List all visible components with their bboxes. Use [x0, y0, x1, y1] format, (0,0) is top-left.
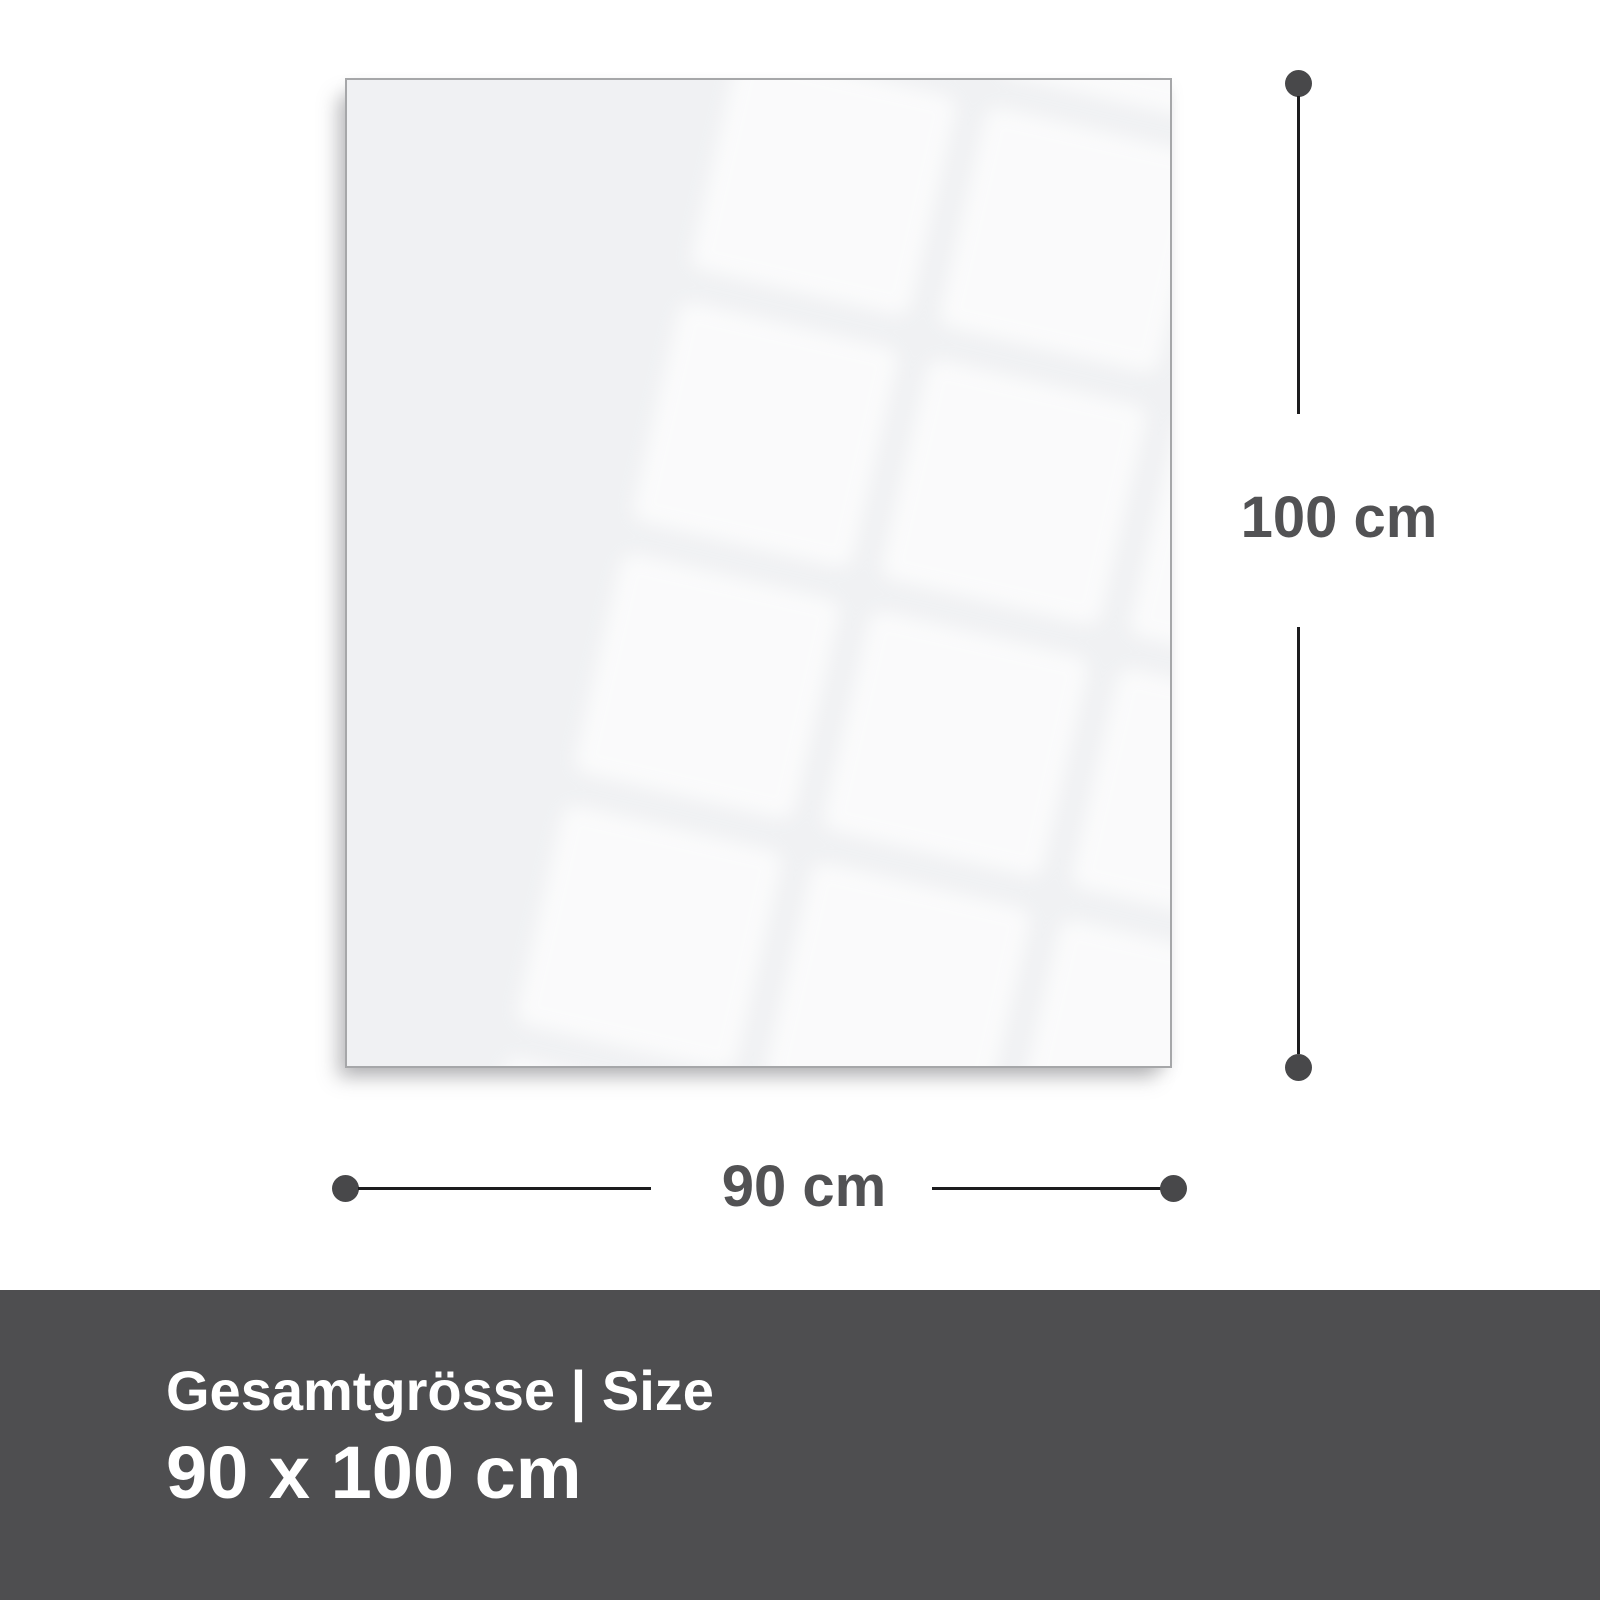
height-dimension-label: 100 cm: [1241, 489, 1438, 547]
product-size-diagram: 100 cm 90 cm Gesamtgrösse | Size 90 x 10…: [0, 0, 1600, 1600]
width-dimension-line-left: [358, 1187, 651, 1190]
footer-title: Gesamtgrösse | Size: [166, 1360, 714, 1422]
width-dimension-line-right: [932, 1187, 1161, 1190]
height-dimension-line-lower: [1297, 627, 1300, 1054]
height-dimension-bottom-dot-icon: [1285, 1054, 1312, 1081]
height-dimension-top-dot-icon: [1285, 70, 1312, 97]
width-dimension-label: 90 cm: [722, 1158, 886, 1216]
height-dimension-line-upper: [1297, 96, 1300, 414]
glass-panel: [345, 78, 1172, 1068]
footer-size-value: 90 x 100 cm: [166, 1432, 582, 1513]
width-dimension-left-dot-icon: [332, 1175, 359, 1202]
window-reflection-grid: [456, 80, 1170, 1066]
width-dimension-right-dot-icon: [1160, 1175, 1187, 1202]
panel-reflection: [347, 80, 1170, 1066]
